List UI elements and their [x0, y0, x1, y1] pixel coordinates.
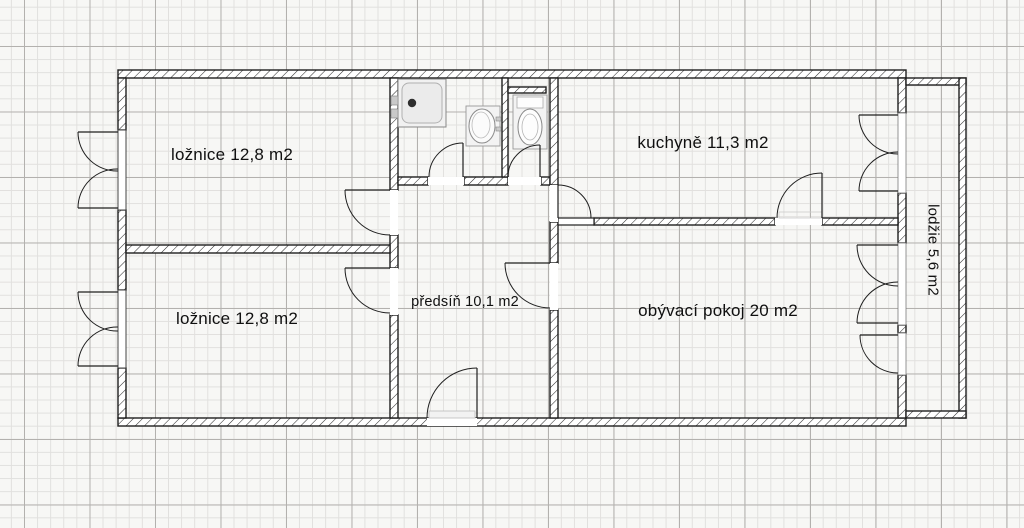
wall-loggia-seg2	[898, 193, 906, 243]
kitchen-balcony-door	[859, 115, 898, 191]
shower-tray-icon	[391, 79, 446, 127]
entrance-door	[427, 368, 477, 418]
bedroom2-doorway	[390, 268, 398, 315]
room-label-loggia: lodžie 5,6 m2	[925, 204, 942, 296]
toilet-icon	[513, 95, 547, 149]
bedroom2-window	[118, 290, 126, 368]
living-balcony-door2	[860, 335, 898, 373]
wall-left-seg3	[118, 368, 126, 418]
kitchen-door	[558, 185, 591, 218]
wall-left-seg1	[118, 78, 126, 130]
wall-bedrooms-seg2	[390, 235, 398, 268]
bedroom1-doorway	[390, 190, 398, 235]
wall-bottom	[118, 418, 906, 426]
living-doorway	[550, 263, 558, 310]
wall-bedrooms-seg3	[390, 315, 398, 418]
loggia-wall-top	[906, 78, 966, 85]
bedroom1-window-casements	[78, 132, 118, 208]
entrance-threshold	[429, 411, 475, 418]
room-label-bedroom-1: ložnice 12,8 m2	[171, 145, 293, 165]
wall-bedrooms-seg1	[390, 78, 398, 190]
wall-kitchen-living-seg2	[822, 218, 898, 225]
wall-bath-bottom-seg1	[398, 177, 428, 185]
living-balcony-opening2	[898, 333, 906, 375]
entrance-doorway	[427, 418, 477, 426]
wall-hall-right-seg3	[550, 310, 558, 418]
bedroom2-window-casements	[78, 292, 118, 366]
bedroom1-window	[118, 130, 126, 210]
room-label-living-room: obývací pokoj 20 m2	[638, 301, 798, 321]
wall-bath-bottom-seg2	[464, 177, 508, 185]
kitchen-balcony-opening	[898, 113, 906, 193]
loggia-wall-right	[959, 78, 966, 418]
wall-left-seg2	[118, 210, 126, 290]
loggia-wall-bottom	[906, 411, 966, 418]
wall-hall-right-seg1	[550, 78, 558, 185]
kitchen-sill	[558, 218, 594, 225]
floor-plan-drawing	[0, 0, 1024, 528]
kitchen-living-door	[777, 173, 822, 218]
living-balcony-door	[857, 245, 898, 323]
wc-door	[508, 145, 540, 177]
room-label-bedroom-2: ložnice 12,8 m2	[176, 309, 298, 329]
washbasin-icon	[466, 106, 501, 146]
wall-bath-bottom-seg3	[541, 177, 550, 185]
room-label-hallway: předsíň 10,1 m2	[411, 294, 519, 310]
living-balcony-opening	[898, 243, 906, 325]
wall-bath-wc-divider	[502, 78, 508, 177]
bedroom2-door	[345, 268, 390, 313]
wall-kitchen-living-seg1	[594, 218, 775, 225]
kitchen-living-threshold	[779, 212, 822, 218]
wc-duct	[508, 87, 546, 93]
room-label-kitchen: kuchyně 11,3 m2	[637, 133, 768, 153]
wall-loggia-seg3	[898, 325, 906, 333]
wc-doorway	[508, 177, 541, 185]
bathroom-door	[429, 143, 463, 177]
wall-loggia-seg4	[898, 375, 906, 418]
bathroom-doorway	[428, 177, 464, 185]
wall-top	[118, 70, 906, 78]
wall-hall-right-seg2	[550, 222, 558, 263]
kitchen-doorway	[550, 185, 558, 222]
floor-plan: ložnice 12,8 m2 ložnice 12,8 m2 kuchyně …	[0, 0, 1024, 528]
wall-loggia-seg1	[898, 78, 906, 113]
wall-bedroom-divider	[126, 245, 390, 253]
kitchen-living-doorway	[775, 218, 822, 225]
bedroom1-door	[345, 190, 390, 235]
